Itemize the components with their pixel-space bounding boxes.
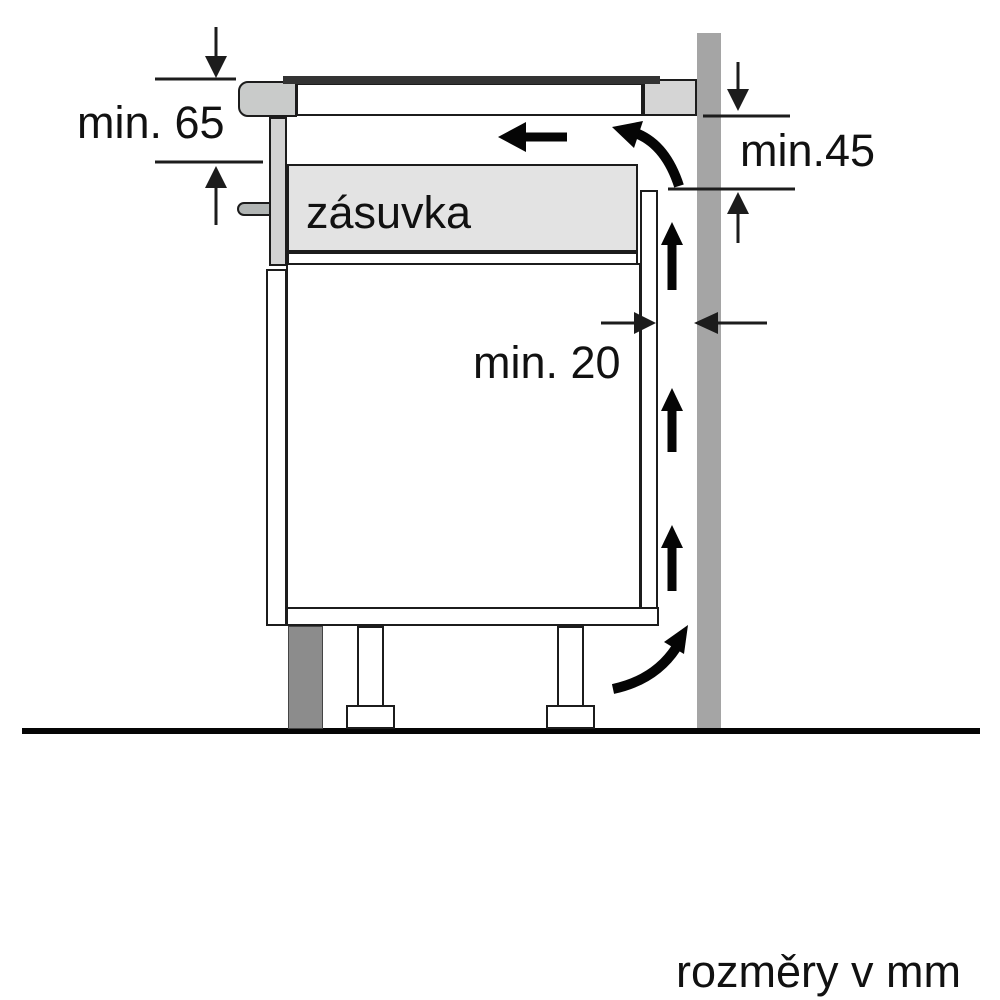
installation-diagram: zásuvka min. 65 min.45 min. 20 rozměry v… <box>0 0 1000 1000</box>
airflow-top-curve <box>638 134 679 186</box>
airflow-up-arrow-1-head <box>661 222 683 245</box>
dim20-left-arrow-head <box>694 312 718 334</box>
dim45-up-arrow-head <box>727 192 749 214</box>
dim65-up-arrow-head <box>205 166 227 188</box>
dim20-right-arrow-head <box>634 312 656 334</box>
dim45-down-arrow-head <box>727 89 749 111</box>
airflow-left-arrow-head <box>498 122 526 152</box>
dim65-down-arrow-head <box>205 56 227 78</box>
airflow-up-arrow-2-head <box>661 388 683 411</box>
airflow-bottom-curve <box>613 648 676 689</box>
airflow-top-curve-head <box>612 121 643 148</box>
airflow-up-arrow-3-head <box>661 525 683 548</box>
arrows-overlay <box>0 0 1000 1000</box>
